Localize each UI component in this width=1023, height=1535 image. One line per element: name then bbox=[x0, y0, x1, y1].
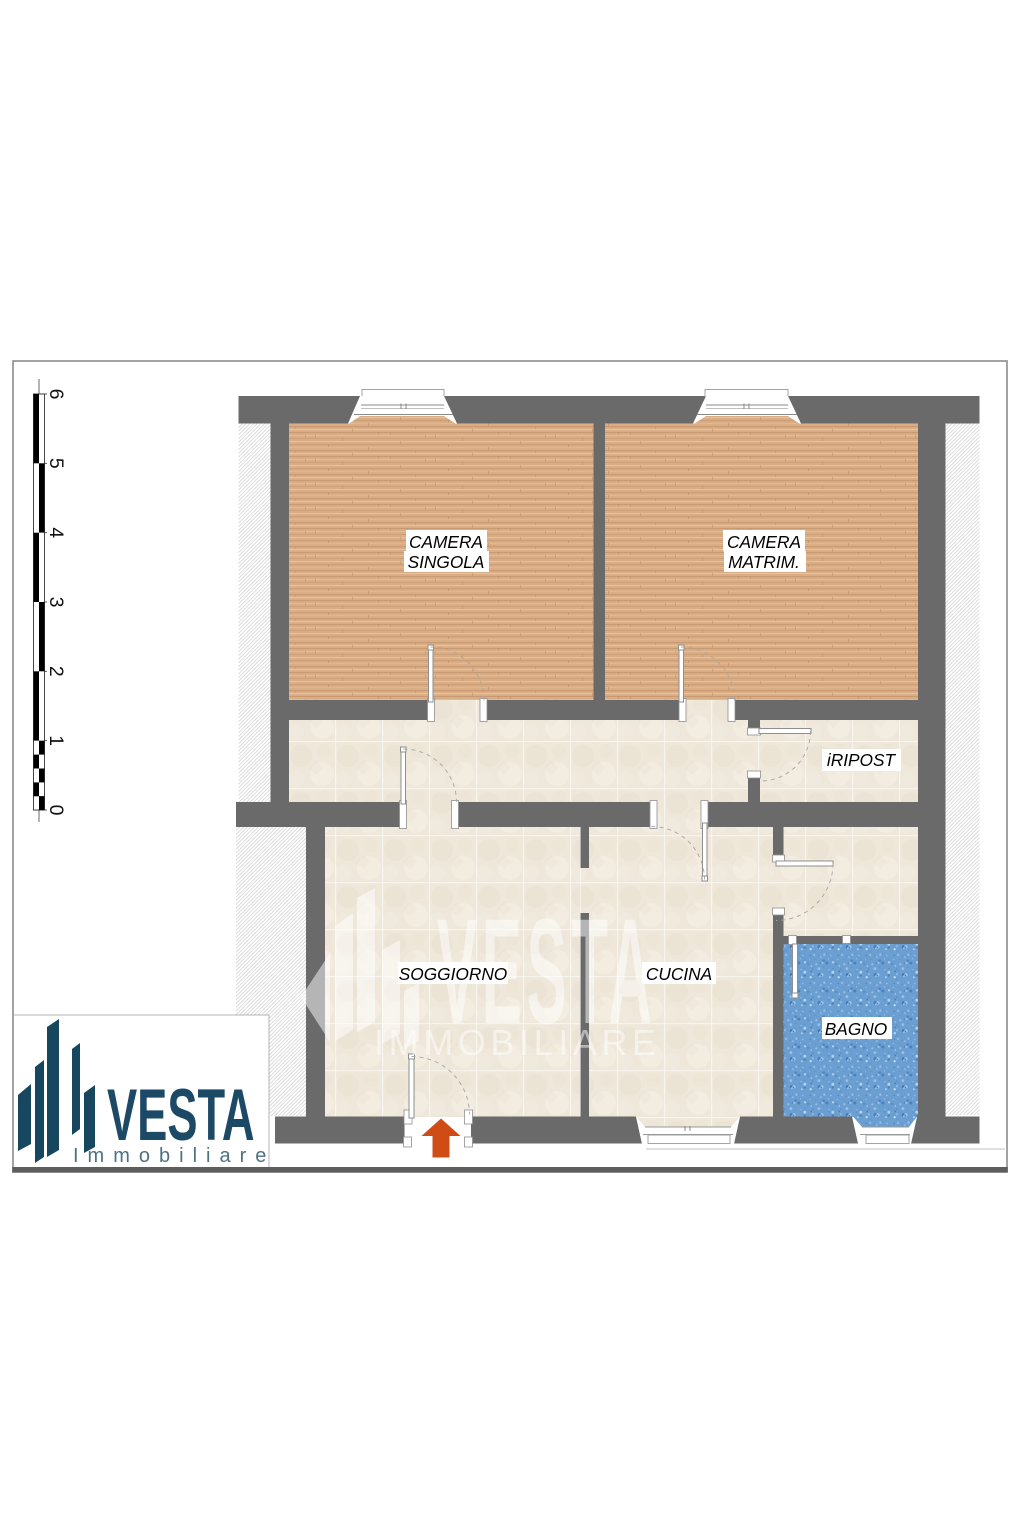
svg-text:5: 5 bbox=[45, 458, 67, 469]
svg-text:2: 2 bbox=[45, 666, 67, 677]
svg-text:3: 3 bbox=[45, 597, 67, 608]
svg-text:MATRIM.: MATRIM. bbox=[728, 552, 800, 572]
svg-text:BAGNO: BAGNO bbox=[825, 1019, 887, 1039]
svg-text:VESTA: VESTA bbox=[107, 1074, 255, 1156]
svg-text:IMMOBILIARE: IMMOBILIARE bbox=[374, 1022, 661, 1063]
svg-text:1: 1 bbox=[45, 735, 67, 746]
svg-text:CAMERA: CAMERA bbox=[409, 532, 483, 552]
svg-text:4: 4 bbox=[45, 527, 67, 538]
svg-text:0: 0 bbox=[45, 805, 67, 816]
svg-text:CAMERA: CAMERA bbox=[727, 532, 801, 552]
svg-text:iRIPOST: iRIPOST bbox=[827, 750, 897, 770]
svg-text:6: 6 bbox=[45, 389, 67, 400]
svg-text:CUCINA: CUCINA bbox=[646, 964, 712, 984]
svg-text:SOGGIORNO: SOGGIORNO bbox=[399, 964, 508, 984]
svg-text:SINGOLA: SINGOLA bbox=[408, 552, 485, 572]
svg-text:Immobiliare: Immobiliare bbox=[73, 1145, 275, 1167]
